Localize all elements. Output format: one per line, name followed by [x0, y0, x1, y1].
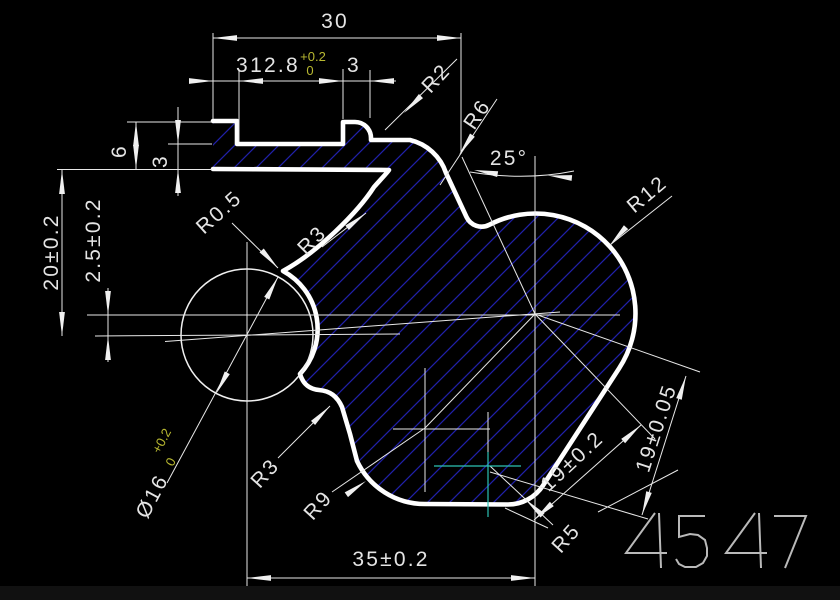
svg-text:3: 3: [347, 54, 361, 77]
svg-text:3: 3: [236, 54, 250, 77]
svg-text:6: 6: [108, 144, 131, 158]
svg-text:3: 3: [149, 154, 172, 168]
svg-text:2.5±0.2: 2.5±0.2: [82, 197, 105, 282]
svg-text:35±0.2: 35±0.2: [352, 548, 429, 571]
svg-text:0: 0: [306, 63, 313, 78]
svg-text:25°: 25°: [490, 147, 528, 170]
svg-text:20±0.2: 20±0.2: [40, 213, 63, 290]
svg-text:+0.2: +0.2: [300, 49, 326, 64]
svg-text:30: 30: [321, 10, 349, 33]
svg-text:12.8: 12.8: [250, 54, 300, 77]
